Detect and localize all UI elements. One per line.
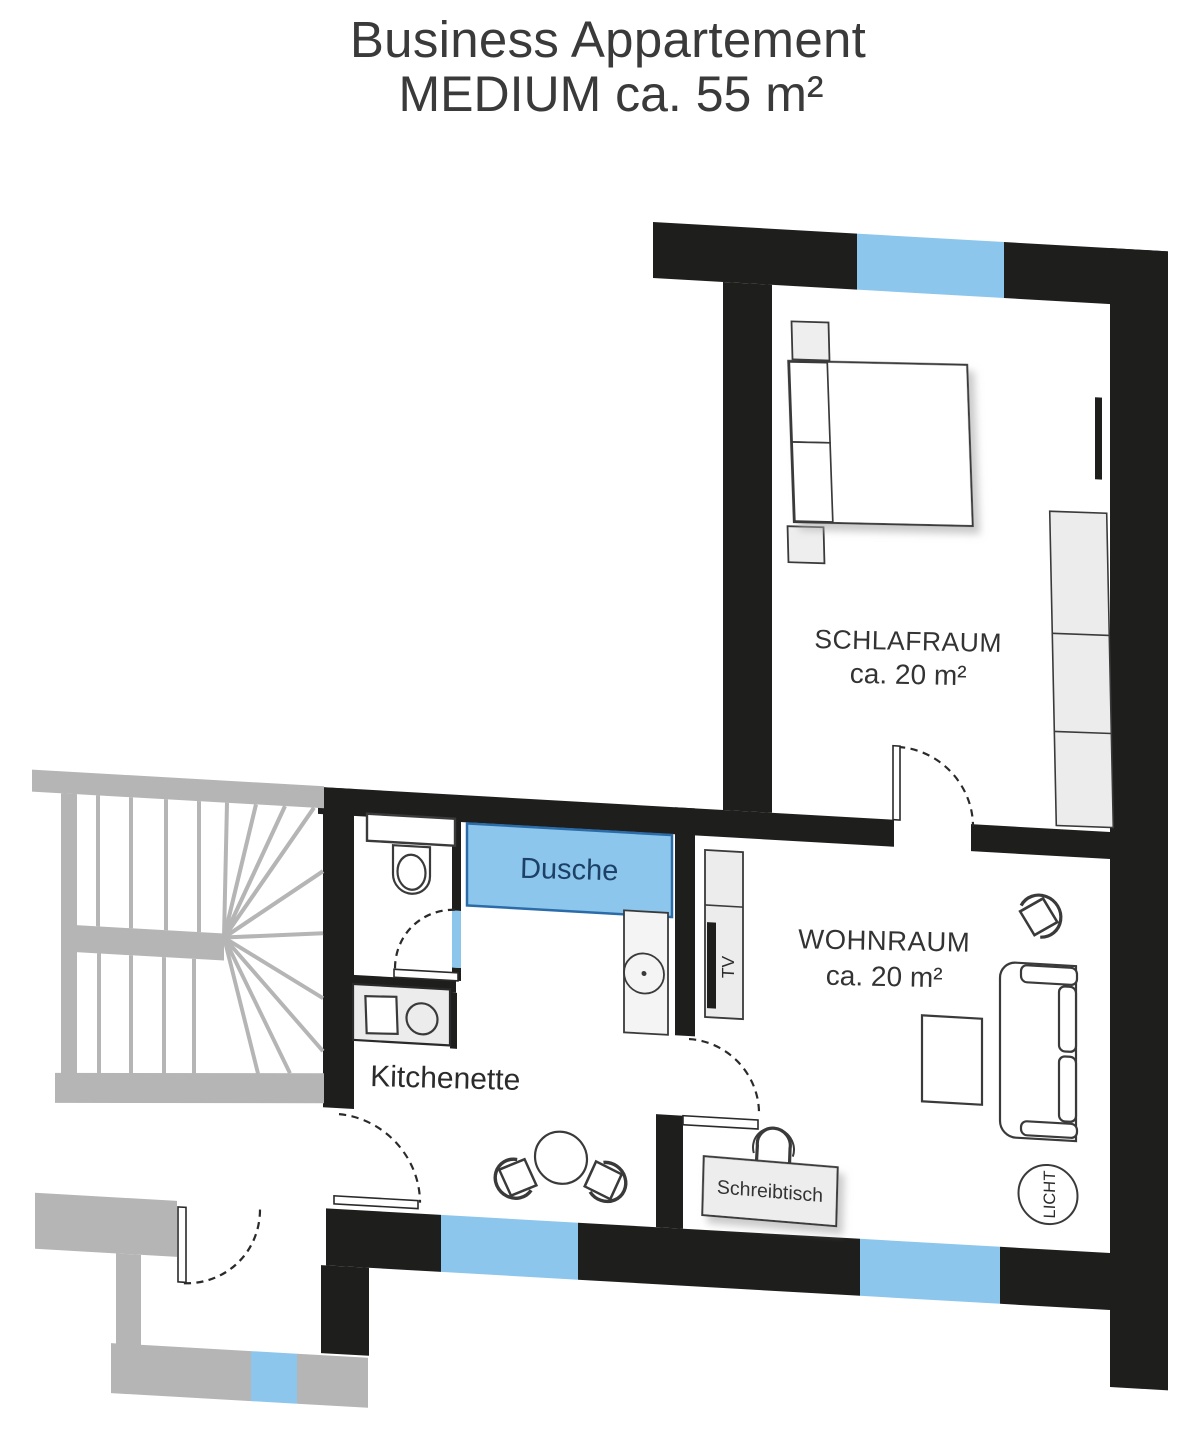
svg-text:WOHNRAUM: WOHNRAUM [798, 923, 971, 958]
svg-text:Business Appartement: Business Appartement [350, 11, 866, 68]
svg-text:Dusche: Dusche [520, 853, 619, 888]
svg-text:MEDIUM ca. 55 m²: MEDIUM ca. 55 m² [398, 66, 823, 122]
svg-text:SCHLAFRAUM: SCHLAFRAUM [814, 624, 1002, 658]
svg-text:Kitchenette: Kitchenette [370, 1060, 521, 1097]
svg-text:TV: TV [718, 955, 738, 979]
svg-text:LICHT: LICHT [1041, 1170, 1059, 1219]
svg-text:ca. 20 m²: ca. 20 m² [850, 658, 967, 691]
svg-text:ca. 20 m²: ca. 20 m² [826, 960, 943, 993]
